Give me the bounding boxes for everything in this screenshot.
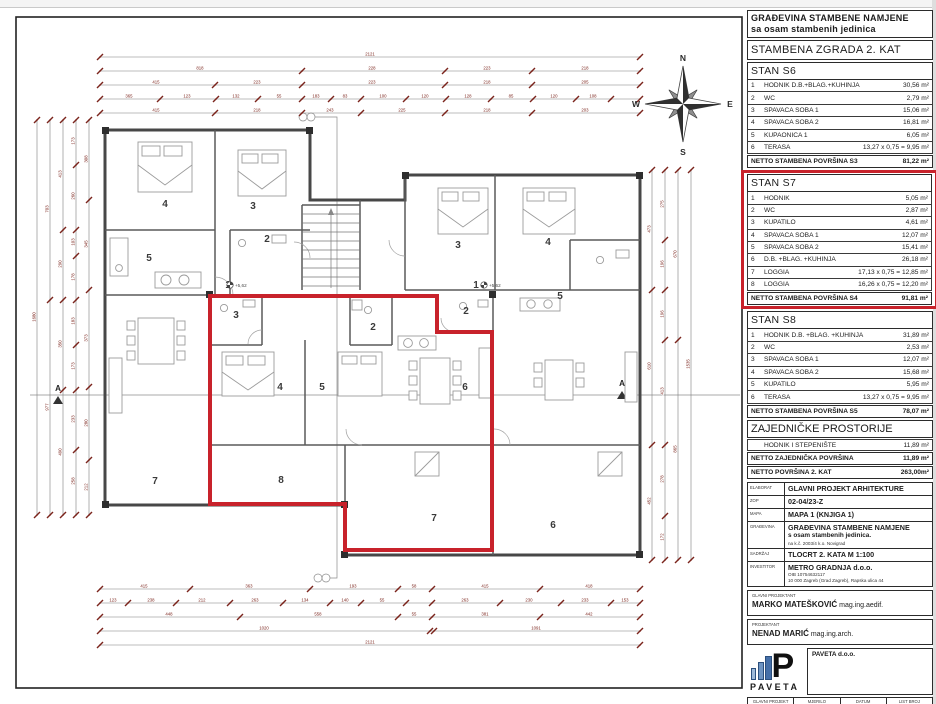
common-areas-section: ZAJEDNIČKE PROSTORIJE HODNIK I STEPENIŠT… — [747, 420, 933, 479]
bed — [222, 352, 274, 396]
svg-text:473: 473 — [646, 225, 651, 233]
svg-text:703: 703 — [44, 205, 49, 213]
room-row-label: TERASA — [764, 144, 863, 151]
room-row-number: 3 — [751, 356, 764, 363]
field-value: GRAĐEVINA STAMBENE NAMJENE s osam stambe… — [785, 522, 932, 548]
project-header-line1: GRAĐEVINA STAMBENE NAMJENE — [751, 13, 929, 24]
room-row-number: 4 — [751, 232, 764, 239]
staircase — [302, 208, 360, 288]
compass-rose — [645, 66, 721, 142]
furniture — [109, 142, 637, 476]
svg-text:610: 610 — [646, 362, 651, 370]
svg-text:132: 132 — [232, 93, 240, 98]
svg-text:2121: 2121 — [365, 639, 375, 644]
footer-fields: GLAVNI PROJEKT 02/04/2023 MJERILO 1:100 … — [747, 697, 933, 704]
svg-text:58: 58 — [412, 583, 417, 588]
room-row-number: 5 — [751, 244, 764, 251]
footer-field-label: DATUM — [841, 699, 886, 704]
svg-text:345: 345 — [83, 240, 88, 248]
room-row-number: 3 — [751, 219, 764, 226]
room-row-label: SPAVAĆA SOBA 1 — [764, 107, 903, 114]
svg-text:196: 196 — [659, 310, 664, 318]
dining-table — [127, 318, 185, 364]
room-row-area: 4,61 m² — [906, 219, 928, 226]
room-row-label: SPAVAĆA SOBA 2 — [764, 244, 902, 251]
room-row-area: 30,56 m² — [903, 82, 929, 89]
svg-text:418: 418 — [585, 583, 593, 588]
room-row-label: KUPAONICA 1 — [764, 132, 907, 139]
room-row-label: SPAVAĆA SOBA 2 — [764, 119, 903, 126]
titleblock-investitor: INVESTITOR METRO GRADNJA d.o.o. OIB 1075… — [748, 562, 932, 586]
room-row-number: 1 — [751, 332, 764, 339]
svg-text:123: 123 — [109, 597, 117, 602]
total-label: NETTO STAMBENA POVRŠINA S3 — [751, 158, 903, 165]
total-label: NETTO ZAJEDNIČKA POVRŠINA — [751, 455, 903, 462]
svg-text:55: 55 — [380, 597, 385, 602]
svg-text:3: 3 — [250, 201, 256, 212]
investitor-address: 10 000 Zagreb (Grad Zagreb), Rapska ulic… — [788, 578, 929, 584]
svg-text:350: 350 — [57, 340, 62, 348]
titleblock-elaborat: ELABORAT GLAVNI PROJEKT ARHITEKTURE — [748, 483, 932, 496]
common-total-1: NETTO ZAJEDNIČKA POVRŠINA 11,89 m² — [747, 452, 933, 465]
svg-text:865: 865 — [672, 445, 677, 453]
common-areas-row: HODNIK I STEPENIŠTE 11,89 m² — [747, 439, 933, 451]
footer-field-label: MJERILO — [794, 699, 839, 704]
bed — [438, 188, 488, 234]
svg-text:212: 212 — [83, 483, 88, 491]
stan-s8-section: STAN S8 1 HODNIK D.B. +BLAG. +KUHINJA 31… — [747, 311, 933, 417]
dimension-chains: 2121818228223218415223223218205365123132… — [31, 51, 694, 648]
svg-text:280: 280 — [83, 419, 88, 427]
room-row: 1 HODNIK D.B.+BLAG.+KUHINJA 30,56 m² — [747, 80, 933, 92]
svg-text:818: 818 — [196, 65, 204, 70]
designer-name: NENAD MARIĆ — [752, 629, 809, 638]
footer-field: MJERILO 1:100 — [794, 698, 840, 704]
room-row-area: 13,27 x 0,75 = 9,95 m² — [863, 394, 929, 401]
room-row-area: 17,13 x 0,75 = 12,85 m² — [858, 269, 928, 276]
room-row-number: 2 — [751, 344, 764, 351]
svg-text:193: 193 — [349, 583, 357, 588]
room-row: 3 SPAVAĆA SOBA 1 12,07 m² — [747, 354, 933, 366]
svg-text:278: 278 — [659, 475, 664, 483]
room-row-label: WC — [764, 207, 906, 214]
total-label: NETTO POVRŠINA 2. KAT — [751, 469, 901, 476]
kitchen-counter — [155, 272, 201, 288]
svg-text:258: 258 — [70, 477, 75, 485]
svg-text:A: A — [619, 379, 625, 388]
room-row: 6 D.B. +BLAG. +KUHINJA 26,18 m² — [747, 254, 932, 266]
room-row-label: HODNIK — [764, 195, 906, 202]
svg-text:2: 2 — [370, 322, 376, 333]
room-row: 2 WC 2,87 m² — [747, 205, 932, 217]
room-row-number: 6 — [751, 144, 764, 151]
svg-text:178: 178 — [70, 273, 75, 281]
svg-text:8: 8 — [278, 475, 284, 486]
chief-designer-name: MARKO MATEŠKOVIĆ — [752, 600, 837, 609]
svg-text:230: 230 — [525, 597, 533, 602]
svg-text:2: 2 — [264, 234, 270, 245]
project-header: GRAĐEVINA STAMBENE NAMJENE sa osam stamb… — [747, 10, 933, 38]
room-row: 5 KUPATILO 5,95 m² — [747, 379, 933, 391]
svg-text:365: 365 — [125, 93, 133, 98]
room-row-label: LOGGIA — [764, 269, 858, 276]
svg-text:218: 218 — [253, 107, 261, 112]
room-row-area: 5,05 m² — [906, 195, 928, 202]
room-row-label: HODNIK D.B. +BLAG. +KUHINJA — [764, 332, 903, 339]
svg-text:263: 263 — [251, 597, 259, 602]
svg-text:233: 233 — [581, 597, 589, 602]
room-row-area: 12,07 m² — [903, 356, 929, 363]
bed — [338, 352, 382, 396]
room-row: 4 SPAVAĆA SOBA 2 15,68 m² — [747, 367, 933, 379]
room-row-label: HODNIK D.B.+BLAG.+KUHINJA — [764, 82, 903, 89]
floor-plan-area: 2121818228223218415223223218205365123132… — [0, 0, 747, 704]
field-value: TLOCRT 2. KATA M 1:100 — [785, 549, 932, 561]
svg-text:103: 103 — [70, 238, 75, 246]
room-row-label: SPAVAĆA SOBA 1 — [764, 356, 903, 363]
svg-text:413: 413 — [57, 170, 62, 178]
room-row: 5 SPAVAĆA SOBA 2 15,41 m² — [747, 242, 932, 254]
svg-text:415: 415 — [140, 583, 148, 588]
total-area: 81,22 m² — [903, 158, 929, 165]
common-row-area: 11,89 m² — [903, 442, 929, 449]
room-row: 2 WC 2,53 m² — [747, 342, 933, 354]
room-row-label: KUPATILO — [764, 219, 906, 226]
kitchen-counter — [520, 298, 560, 311]
stair-direction-arrow — [328, 208, 334, 215]
room-row-number: 3 — [751, 107, 764, 114]
svg-text:977: 977 — [44, 403, 49, 411]
total-area: 11,89 m² — [903, 455, 929, 462]
svg-text:5: 5 — [319, 382, 325, 393]
room-row: 8 LOGGIA 16,26 x 0,75 = 12,20 m² — [747, 279, 932, 291]
svg-text:173: 173 — [70, 362, 75, 370]
title-block-table: ELABORAT GLAVNI PROJEKT ARHITEKTURE ZOP … — [747, 482, 933, 587]
svg-text:363: 363 — [245, 583, 253, 588]
room-row-area: 15,06 m² — [903, 107, 929, 114]
field-value: MAPA 1 (KNJIGA 1) — [785, 509, 932, 521]
room-row-area: 15,68 m² — [903, 369, 929, 376]
section-lines — [30, 113, 740, 582]
lounge-chair — [598, 452, 622, 476]
svg-text:+5,62: +5,62 — [489, 283, 501, 288]
svg-text:415: 415 — [152, 107, 160, 112]
room-row-number: 2 — [751, 207, 764, 214]
footer-field: LIST BROJ 5 — [887, 698, 932, 704]
room-row-label: SPAVAĆA SOBA 2 — [764, 369, 903, 376]
svg-text:308: 308 — [83, 155, 88, 163]
stan-s7-title: STAN S7 — [747, 174, 932, 192]
field-key: ELABORAT — [748, 483, 785, 495]
project-header-line2: sa osam stambenih jedinica — [751, 24, 929, 35]
room-row-area: 6,05 m² — [907, 132, 929, 139]
logo-bar — [758, 662, 764, 680]
svg-text:6: 6 — [550, 520, 556, 531]
svg-text:218: 218 — [483, 79, 491, 84]
designer-label: PROJEKTANT — [752, 622, 928, 627]
svg-text:172: 172 — [659, 533, 664, 541]
svg-text:85: 85 — [509, 93, 514, 98]
stan-s8-rows: 1 HODNIK D.B. +BLAG. +KUHINJA 31,89 m² 2… — [747, 329, 933, 403]
room-row-label: WC — [764, 344, 907, 351]
stan-s6-section: STAN S6 1 HODNIK D.B.+BLAG.+KUHINJA 30,5… — [747, 62, 933, 168]
svg-text:223: 223 — [483, 65, 491, 70]
field-value: GLAVNI PROJEKT ARHITEKTURE — [785, 483, 932, 495]
room-row-area: 5,95 m² — [907, 381, 929, 388]
total-area: 78,07 m² — [903, 408, 929, 415]
room-row-area: 13,27 x 0,75 = 9,95 m² — [863, 144, 929, 151]
floor-plan-svg: 2121818228223218415223223218205365123132… — [0, 0, 747, 704]
svg-text:183: 183 — [312, 93, 320, 98]
field-key: ZOP — [748, 496, 785, 508]
room-row-area: 15,41 m² — [902, 244, 928, 251]
field-key: SADRŽAJ — [748, 549, 785, 561]
svg-text:218: 218 — [581, 65, 589, 70]
field-key: GRAĐEVINA — [748, 522, 785, 548]
total-area: 263,00m² — [901, 469, 929, 476]
svg-text:120: 120 — [421, 93, 429, 98]
room-row-number: 5 — [751, 381, 764, 388]
designer-title: mag.ing.arch. — [809, 631, 853, 638]
titleblock-mapa: MAPA MAPA 1 (KNJIGA 1) — [748, 509, 932, 522]
svg-text:N: N — [680, 53, 686, 63]
svg-text:415: 415 — [481, 583, 489, 588]
room-row-label: LOGGIA — [764, 281, 858, 288]
svg-text:A: A — [55, 384, 61, 393]
chief-designer-label: GLAVNI PROJEKTANT — [752, 593, 928, 598]
room-row: 3 SPAVAĆA SOBA 1 15,06 m² — [747, 105, 933, 117]
room-row-number: 5 — [751, 132, 764, 139]
total-area: 91,81 m² — [902, 295, 928, 302]
svg-text:4: 4 — [545, 237, 551, 248]
room-row-number: 4 — [751, 369, 764, 376]
room-row-number: 7 — [751, 269, 764, 276]
field-key: INVESTITOR — [748, 562, 785, 586]
svg-text:448: 448 — [165, 611, 173, 616]
svg-text:218: 218 — [483, 107, 491, 112]
room-row-number: 1 — [751, 82, 764, 89]
investitor-name: METRO GRADNJA d.o.o. — [788, 564, 929, 573]
company-info: PAVETA d.o.o. — [807, 648, 933, 695]
dining-table — [409, 358, 461, 404]
sofa — [479, 348, 491, 398]
titleblock-sadrzaj: SADRŽAJ TLOCRT 2. KATA M 1:100 — [748, 549, 932, 562]
svg-text:490: 490 — [57, 448, 62, 456]
room-row-area: 2,53 m² — [907, 344, 929, 351]
kitchen-counter — [398, 336, 436, 350]
room-row-area: 16,26 x 0,75 = 12,20 m² — [858, 281, 928, 288]
footer-field: DATUM 05/2023 — [841, 698, 887, 704]
stan-s6-rows: 1 HODNIK D.B.+BLAG.+KUHINJA 30,56 m² 2 W… — [747, 80, 933, 154]
svg-text:1091: 1091 — [531, 625, 541, 630]
field-value: 02-04/23-Z — [785, 496, 932, 508]
field-value: METRO GRADNJA d.o.o. OIB 10754632117 10 … — [785, 562, 932, 586]
room-row-label: SPAVAĆA SOBA 1 — [764, 232, 902, 239]
svg-text:670: 670 — [672, 250, 677, 258]
svg-text:3: 3 — [455, 240, 461, 251]
stan-s8-title: STAN S8 — [747, 311, 933, 329]
svg-text:223: 223 — [368, 79, 376, 84]
room-row: 1 HODNIK 5,05 m² — [747, 192, 932, 204]
titleblock-gradevina: GRAĐEVINA GRAĐEVINA STAMBENE NAMJENE s o… — [748, 522, 932, 549]
svg-text:205: 205 — [581, 79, 589, 84]
svg-text:55: 55 — [412, 611, 417, 616]
svg-text:196: 196 — [659, 260, 664, 268]
svg-text:4: 4 — [277, 382, 283, 393]
svg-text:5: 5 — [557, 291, 563, 302]
gradevina-line2: s osam stambenih jedinica. — [788, 532, 929, 541]
svg-text:+5,62: +5,62 — [235, 283, 247, 288]
floor-total: NETTO POVRŠINA 2. KAT 263,00m² — [747, 466, 933, 479]
stan-s7-total: NETTO STAMBENA POVRŠINA S4 91,81 m² — [747, 292, 932, 305]
room-row-number: 4 — [751, 119, 764, 126]
level-marks: +5,62+5,62 — [227, 282, 501, 288]
svg-text:415: 415 — [152, 79, 160, 84]
common-row-label: HODNIK I STEPENIŠTE — [764, 442, 903, 449]
dining-table — [534, 360, 584, 400]
svg-text:233: 233 — [70, 415, 75, 423]
svg-text:173: 173 — [70, 137, 75, 145]
footer-field-label: GLAVNI PROJEKT — [748, 699, 793, 704]
svg-text:1535: 1535 — [685, 359, 690, 369]
svg-text:223: 223 — [253, 79, 261, 84]
room-row: 4 SPAVAĆA SOBA 2 16,81 m² — [747, 117, 933, 129]
svg-text:W: W — [632, 99, 641, 109]
svg-text:1: 1 — [473, 280, 479, 291]
stan-s6-title: STAN S6 — [747, 62, 933, 80]
stan-s8-total: NETTO STAMBENA POVRŠINA S5 78,07 m² — [747, 405, 933, 418]
stan-s7-section-highlighted: STAN S7 1 HODNIK 5,05 m² 2 WC 2,87 m² 3 … — [741, 170, 936, 309]
room-row: 1 HODNIK D.B. +BLAG. +KUHINJA 31,89 m² — [747, 329, 933, 341]
room-row-number: 1 — [751, 195, 764, 202]
common-areas-title: ZAJEDNIČKE PROSTORIJE — [747, 420, 933, 438]
bed — [523, 188, 575, 234]
room-row: 6 TERASA 13,27 x 0,75 = 9,95 m² — [747, 391, 933, 403]
logo-wordmark: PAVETA — [750, 682, 807, 692]
company-name: PAVETA d.o.o. — [812, 651, 928, 658]
svg-text:E: E — [727, 99, 733, 109]
room-row-number: 2 — [751, 95, 764, 102]
designer-box: PROJEKTANT NENAD MARIĆ mag.ing.arch. — [747, 619, 933, 645]
svg-text:413: 413 — [659, 387, 664, 395]
svg-text:120: 120 — [550, 93, 558, 98]
room-row: 7 LOGGIA 17,13 x 0,75 = 12,85 m² — [747, 267, 932, 279]
room-row-label: WC — [764, 95, 907, 102]
drawing-sheet: 2121818228223218415223223218205365123132… — [0, 0, 936, 704]
svg-text:153: 153 — [621, 597, 629, 602]
svg-text:140: 140 — [341, 597, 349, 602]
svg-text:1020: 1020 — [259, 625, 269, 630]
svg-text:3: 3 — [233, 310, 239, 321]
svg-text:123: 123 — [183, 93, 191, 98]
svg-text:83: 83 — [343, 93, 348, 98]
svg-text:S: S — [680, 147, 686, 157]
bed — [138, 142, 192, 192]
svg-text:243: 243 — [326, 107, 334, 112]
room-row-label: D.B. +BLAG. +KUHINJA — [764, 256, 902, 263]
stan-s6-total: NETTO STAMBENA POVRŠINA S3 81,22 m² — [747, 155, 933, 168]
svg-text:183: 183 — [70, 317, 75, 325]
svg-text:373: 373 — [83, 334, 88, 342]
svg-text:7: 7 — [152, 476, 158, 487]
total-label: NETTO STAMBENA POVRŠINA S4 — [751, 295, 902, 302]
bed — [238, 150, 286, 196]
svg-text:228: 228 — [368, 65, 376, 70]
svg-text:134: 134 — [301, 597, 309, 602]
room-row: 2 WC 2,79 m² — [747, 92, 933, 104]
gradevina-line3: na k.č. 2003/4 k.o. Novigrad — [788, 541, 929, 547]
gradevina-line1: GRAĐEVINA STAMBENE NAMJENE — [788, 524, 929, 533]
room-row-area: 31,89 m² — [903, 332, 929, 339]
svg-text:5: 5 — [146, 253, 152, 264]
svg-text:1680: 1680 — [31, 312, 36, 322]
svg-text:260: 260 — [70, 192, 75, 200]
svg-text:452: 452 — [646, 497, 651, 505]
chief-designer-box: GLAVNI PROJEKTANT MARKO MATEŠKOVIĆ mag.i… — [747, 590, 933, 616]
svg-text:2121: 2121 — [365, 51, 375, 56]
sofa — [625, 352, 637, 402]
svg-text:128: 128 — [464, 93, 472, 98]
room-row-number: 8 — [751, 281, 764, 288]
sheet-subtitle: STAMBENA ZGRADA 2. KAT — [747, 40, 933, 60]
svg-text:238: 238 — [147, 597, 155, 602]
svg-text:263: 263 — [461, 597, 469, 602]
total-label: NETTO STAMBENA POVRŠINA S5 — [751, 408, 903, 415]
svg-text:381: 381 — [481, 611, 489, 616]
room-row: 6 TERASA 13,27 x 0,75 = 9,95 m² — [747, 142, 933, 154]
field-key: MAPA — [748, 509, 785, 521]
room-row: 4 SPAVAĆA SOBA 1 12,07 m² — [747, 230, 932, 242]
room-row-label: KUPATILO — [764, 381, 907, 388]
company-logo: P PAVETA — [747, 648, 807, 695]
logo-bar — [751, 668, 756, 680]
titleblock-zop: ZOP 02-04/23-Z — [748, 496, 932, 509]
logo-letter: P — [772, 652, 795, 680]
svg-text:203: 203 — [581, 107, 589, 112]
room-row-area: 2,79 m² — [907, 95, 929, 102]
sofa — [109, 358, 122, 413]
svg-text:212: 212 — [198, 597, 206, 602]
company-row: P PAVETA PAVETA d.o.o. — [747, 648, 933, 695]
svg-text:108: 108 — [589, 93, 597, 98]
room-row-number: 6 — [751, 394, 764, 401]
room-row-area: 26,18 m² — [902, 256, 928, 263]
svg-text:4: 4 — [162, 199, 168, 210]
svg-text:225: 225 — [398, 107, 406, 112]
svg-text:2: 2 — [463, 306, 469, 317]
title-block-panel: GRAĐEVINA STAMBENE NAMJENE sa osam stamb… — [747, 10, 933, 696]
room-row-number: 6 — [751, 256, 764, 263]
lounge-chair — [415, 452, 439, 476]
room-row: 5 KUPAONICA 1 6,05 m² — [747, 130, 933, 142]
svg-text:558: 558 — [314, 611, 322, 616]
stan-s7-rows: 1 HODNIK 5,05 m² 2 WC 2,87 m² 3 KUPATILO… — [747, 192, 932, 291]
chief-designer-title: mag.ing.aedif. — [837, 602, 883, 609]
svg-text:6: 6 — [462, 382, 468, 393]
svg-text:100: 100 — [379, 93, 387, 98]
door-arcs — [215, 240, 510, 445]
svg-text:55: 55 — [277, 93, 282, 98]
svg-text:7: 7 — [431, 513, 437, 524]
svg-text:442: 442 — [585, 611, 593, 616]
footer-field: GLAVNI PROJEKT 02/04/2023 — [748, 698, 794, 704]
section-arrow-left — [53, 396, 63, 404]
room-row-label: TERASA — [764, 394, 863, 401]
svg-text:275: 275 — [659, 200, 664, 208]
room-row: 3 KUPATILO 4,61 m² — [747, 217, 932, 229]
room-row-area: 16,81 m² — [903, 119, 929, 126]
room-row-area: 2,87 m² — [906, 207, 928, 214]
